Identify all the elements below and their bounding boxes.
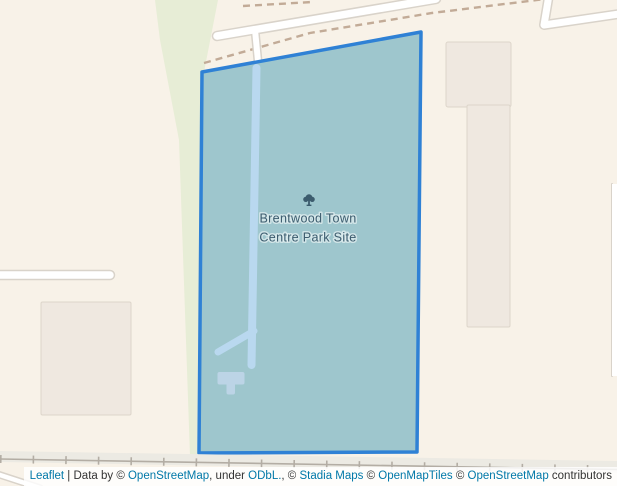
attribution-text: , under [209, 470, 248, 482]
odbl-link[interactable]: ODbL. [248, 470, 281, 482]
building-east [467, 105, 510, 327]
building-southwest [41, 302, 131, 415]
road-branch [255, 30, 258, 61]
inner-path-main [252, 68, 257, 365]
openstreetmap-contributors-link[interactable]: OpenStreetMap [468, 470, 549, 482]
stadia-maps-link[interactable]: Stadia Maps [299, 470, 363, 482]
attribution-text: © [363, 470, 378, 482]
attribution-text: | Data by © [64, 470, 128, 482]
attribution-text: , © [281, 470, 299, 482]
attribution-bar: Leaflet | Data by © OpenStreetMap, under… [24, 467, 617, 486]
leaflet-link[interactable]: Leaflet [30, 470, 65, 482]
openstreetmap-link[interactable]: OpenStreetMap [128, 470, 209, 482]
park-label-line1: Brentwood Town [259, 212, 356, 226]
attribution-text: © [453, 470, 468, 482]
attribution-text: contributors [549, 470, 612, 482]
openmaptiles-link[interactable]: OpenMapTiles [378, 470, 452, 482]
park-label-line2: Centre Park Site [259, 231, 356, 245]
building-northeast [446, 42, 511, 107]
leaflet-map[interactable]: Brentwood Town Centre Park Site Leaflet … [0, 0, 617, 486]
